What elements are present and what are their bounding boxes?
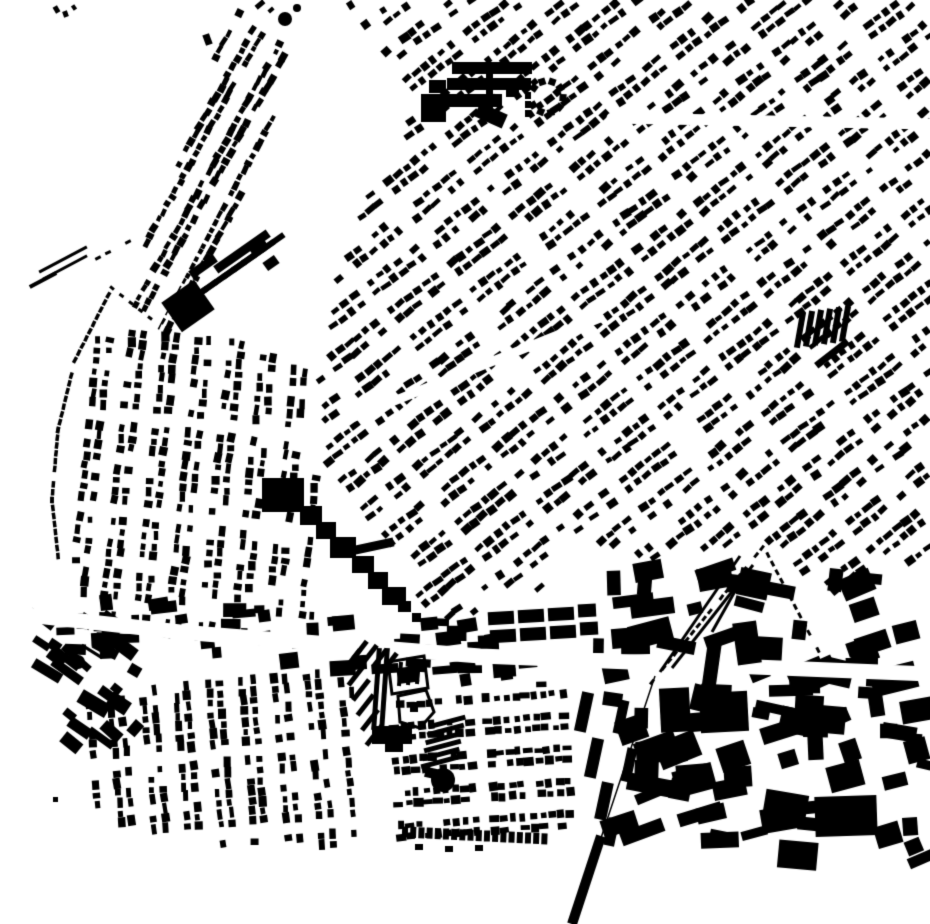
map-canvas <box>0 0 930 924</box>
figure-ground-map <box>0 0 930 924</box>
